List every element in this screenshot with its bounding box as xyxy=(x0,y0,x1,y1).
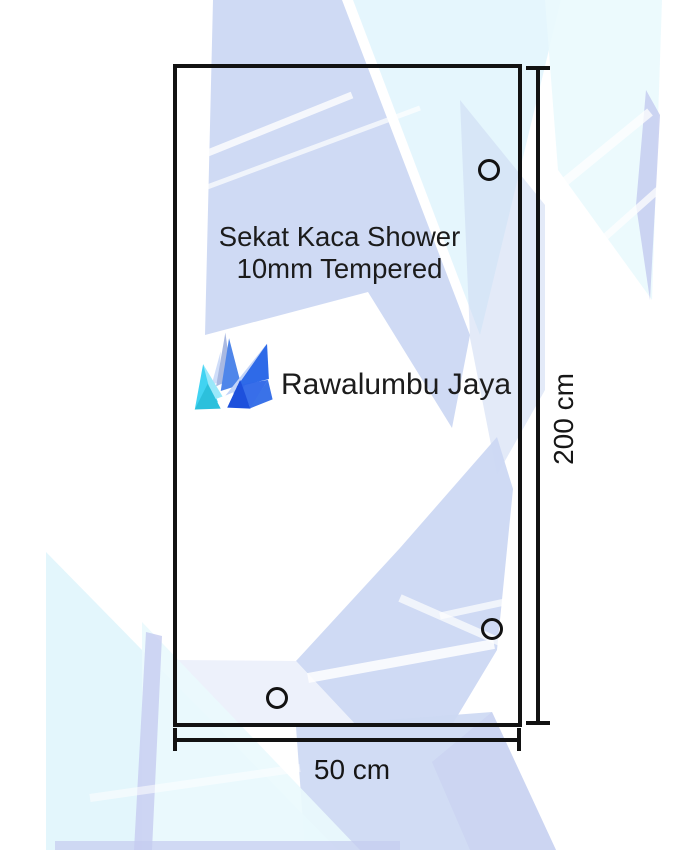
width-dimension-tick-left xyxy=(173,728,177,751)
width-dimension-label: 50 cm xyxy=(302,754,402,786)
width-dimension-line xyxy=(173,738,521,742)
height-dimension-tick-bottom xyxy=(526,721,550,725)
height-dimension-tick-top xyxy=(526,66,550,70)
bg-strip-lavender-bottom xyxy=(55,841,400,850)
brand-logo-icon xyxy=(192,326,280,418)
height-dimension-line xyxy=(536,66,540,725)
panel-description-line2: 10mm Tempered xyxy=(172,253,507,285)
mounting-hole-bottom-left xyxy=(266,687,288,709)
brand-name: Rawalumbu Jaya xyxy=(281,368,511,402)
height-dimension-label: 200 cm xyxy=(548,369,578,469)
mounting-hole-top-right xyxy=(478,159,500,181)
panel-description: Sekat Kaca Shower 10mm Tempered xyxy=(172,221,507,285)
product-diagram: 200 cm 50 cm Sekat Kaca Shower 10mm Temp… xyxy=(0,0,700,850)
mounting-hole-mid-right xyxy=(481,618,503,640)
width-dimension-tick-right xyxy=(517,728,521,751)
panel-description-line1: Sekat Kaca Shower xyxy=(172,221,507,253)
